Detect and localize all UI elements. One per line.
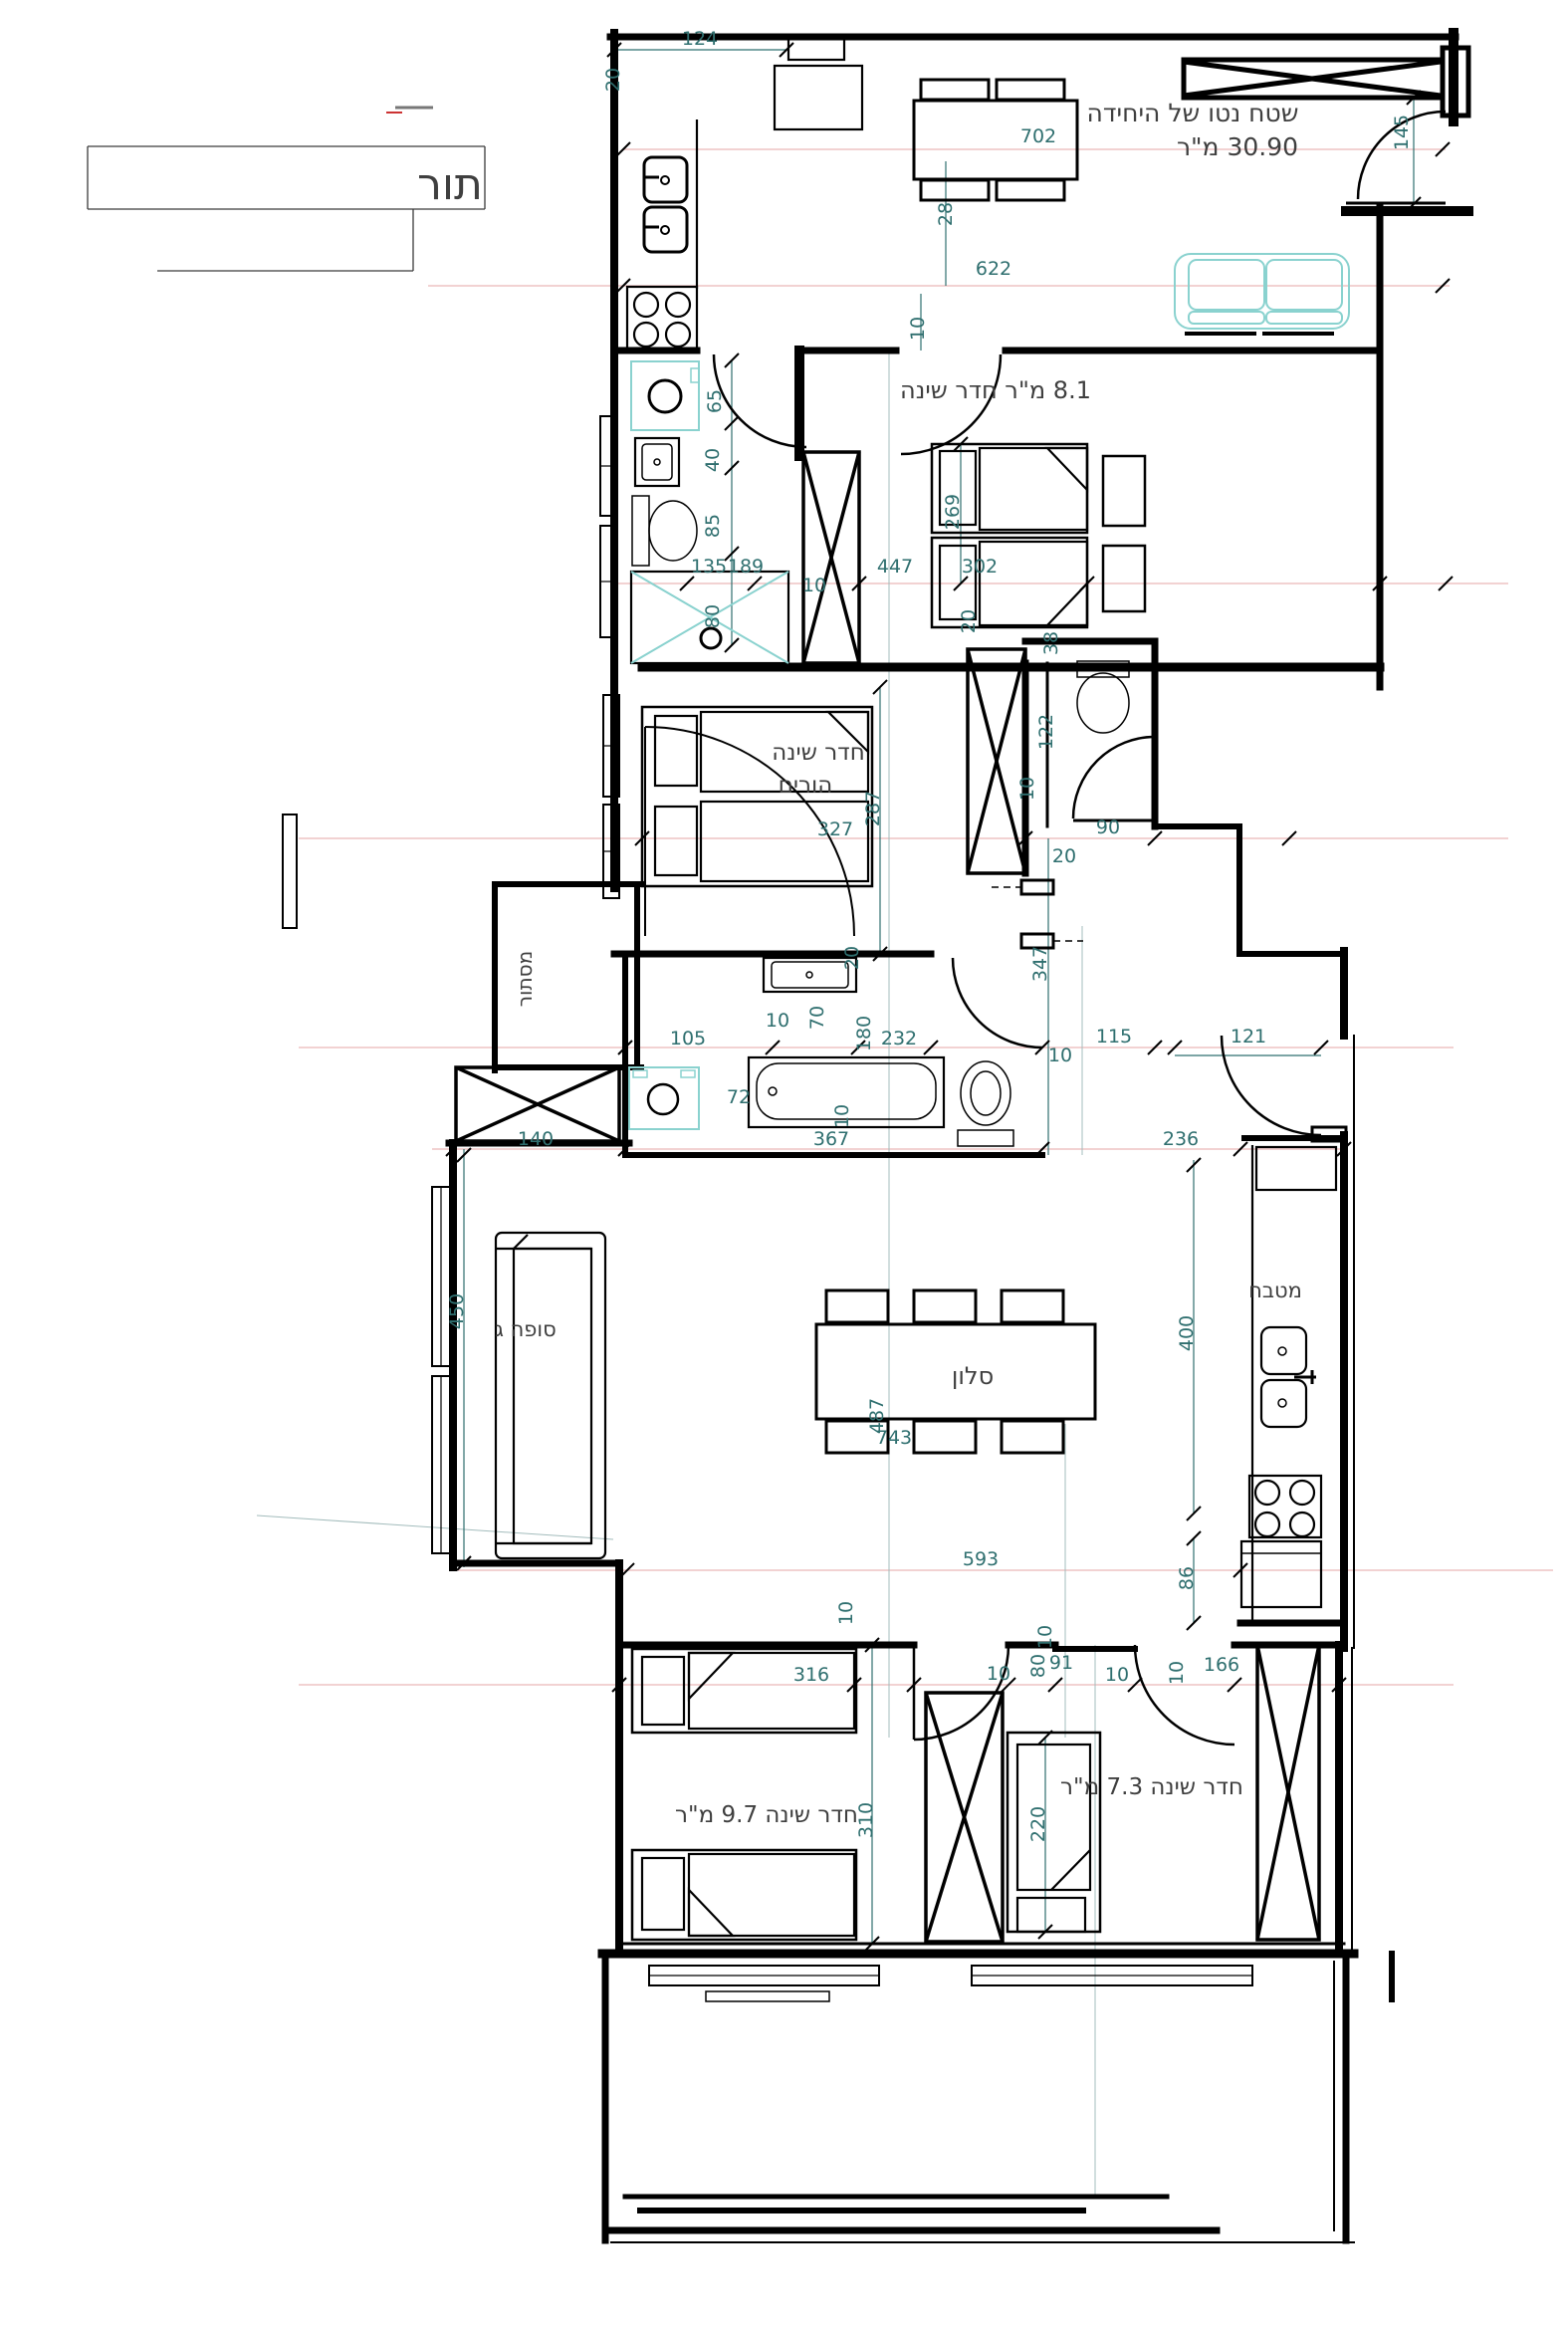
room-label: חדר שינה xyxy=(772,740,865,766)
dimension-label: 220 xyxy=(1027,1806,1049,1842)
dimension-label: 10 xyxy=(1048,1045,1072,1066)
wardrobes xyxy=(456,452,1319,1942)
dimension-label: 40 xyxy=(702,448,724,472)
door-apartment-entry xyxy=(1222,1036,1346,1141)
dimension-label: 10 xyxy=(1166,1661,1188,1685)
room-label: 8.1 מ"ר חדר שינה xyxy=(900,376,1091,404)
dimension-label: 70 xyxy=(806,1006,828,1030)
dimension-label: 28 xyxy=(935,202,957,226)
dimension-label: 327 xyxy=(817,818,853,840)
floor-plan: תור xyxy=(0,0,1568,2329)
dimension-label: 105 xyxy=(670,1028,706,1049)
dimension-label: 85 xyxy=(702,514,724,538)
dimension-label: 189 xyxy=(728,556,764,578)
dimension-label: 10 xyxy=(802,575,826,596)
bath2-toilet xyxy=(958,1061,1013,1146)
dimension-label: 593 xyxy=(963,1548,999,1570)
dimension-label: 115 xyxy=(1096,1026,1132,1048)
dimension-label: 367 xyxy=(813,1128,849,1150)
studio-sofa xyxy=(1175,254,1349,329)
dimension-label: 450 xyxy=(446,1293,468,1329)
living-sofa xyxy=(496,1233,605,1558)
dimension-label: 121 xyxy=(1231,1026,1266,1048)
studio-stove xyxy=(627,287,697,350)
dimension-label: 72 xyxy=(727,1086,751,1108)
wardrobe-bedroom97 xyxy=(926,1693,1003,1942)
bath1-sink xyxy=(635,438,679,486)
dimension-label: 10 xyxy=(766,1010,789,1032)
kitchen-sinks xyxy=(1261,1327,1316,1427)
dimension-label: 80 xyxy=(702,604,724,628)
kitchen-counter xyxy=(1252,1145,1336,1623)
room-label: סלון xyxy=(952,1362,994,1390)
dimension-label: 702 xyxy=(1020,125,1056,147)
bed-73 xyxy=(1008,1733,1100,1932)
room-label: מטבח xyxy=(1248,1279,1302,1302)
dimension-label: 124 xyxy=(682,28,718,50)
wardrobe-parents xyxy=(968,649,1025,873)
beds-97 xyxy=(632,1649,856,1940)
washing-machine-2 xyxy=(629,1067,699,1129)
dimension-label: 743 xyxy=(876,1427,912,1449)
dimension-label: 10 xyxy=(907,317,929,341)
doors xyxy=(645,112,1446,1745)
door-bath-top xyxy=(714,354,806,447)
dimension-label: 10 xyxy=(831,1104,853,1128)
dimension-label: 10 xyxy=(987,1663,1010,1685)
washing-machine-1 xyxy=(631,361,699,430)
dimension-label: 10 xyxy=(1105,1664,1129,1686)
dimension-label: 232 xyxy=(881,1028,917,1049)
logo-text: תור xyxy=(417,159,483,210)
dimension-label: 20 xyxy=(602,68,624,92)
studio-counter xyxy=(697,38,862,289)
dimension-label: 10 xyxy=(1016,777,1038,801)
wardrobe-8-1 xyxy=(803,452,859,663)
door-wc xyxy=(1073,737,1155,820)
dimension-label: 180 xyxy=(853,1016,875,1051)
dimension-label: 10 xyxy=(835,1601,857,1625)
room-label: סופה ג xyxy=(495,1317,557,1341)
pocket-door xyxy=(992,880,1083,948)
room-label: חדר שינה 7.3 מ"ר xyxy=(1060,1774,1243,1800)
dimension-label: 86 xyxy=(1176,1566,1198,1590)
studio-sinks xyxy=(644,157,687,252)
room-label: הורים xyxy=(779,773,833,799)
dimension-label: 287 xyxy=(862,791,884,826)
dimension-label: 122 xyxy=(1035,714,1057,750)
dimension-label: 145 xyxy=(1391,115,1413,150)
dimension-label: 20 xyxy=(1052,845,1076,867)
dimension-label: 20 xyxy=(841,946,863,970)
dimension-label: 447 xyxy=(877,556,913,578)
dimension-label: 91 xyxy=(1049,1652,1073,1674)
dimension-label: 38 xyxy=(1040,631,1062,655)
room-label: 30.90 מ"ר xyxy=(1177,132,1298,161)
dimension-label: 400 xyxy=(1176,1315,1198,1351)
dimension-label: 269 xyxy=(942,494,964,530)
wardrobe-bedroom73 xyxy=(1257,1645,1319,1940)
parents-bed xyxy=(642,707,872,886)
walls xyxy=(449,33,1468,2242)
dimension-label: 236 xyxy=(1163,1128,1199,1150)
dimension-label: 90 xyxy=(1096,816,1120,838)
dimension-label: 347 xyxy=(1029,946,1051,982)
dimension-label: 166 xyxy=(1204,1654,1239,1676)
dimension-label: 80 xyxy=(1027,1654,1049,1678)
dimension-label: 302 xyxy=(962,556,998,578)
dimension-label: 135 xyxy=(691,556,727,578)
dimension-label: 622 xyxy=(976,258,1011,280)
windows xyxy=(283,416,1252,2001)
door-room81 xyxy=(901,354,1001,454)
room-label: חדר שינה 9.7 מ"ר xyxy=(675,1802,858,1828)
kitchen-stove xyxy=(1249,1476,1321,1537)
dimension-label: 310 xyxy=(855,1802,877,1838)
title-block: תור xyxy=(88,108,485,271)
wc-toilet xyxy=(1077,661,1129,733)
bath1-toilet xyxy=(632,496,697,566)
room-label: שטח נטו של היחידה xyxy=(1087,99,1299,127)
dimension-label: 20 xyxy=(958,609,980,633)
dimension-label: 10 xyxy=(1034,1625,1056,1649)
dimension-label: 140 xyxy=(518,1128,554,1150)
beds-81 xyxy=(932,444,1145,627)
dimension-label: 65 xyxy=(704,389,726,413)
dimension-label: 316 xyxy=(793,1664,829,1686)
room-label: מסתור xyxy=(513,951,537,1007)
